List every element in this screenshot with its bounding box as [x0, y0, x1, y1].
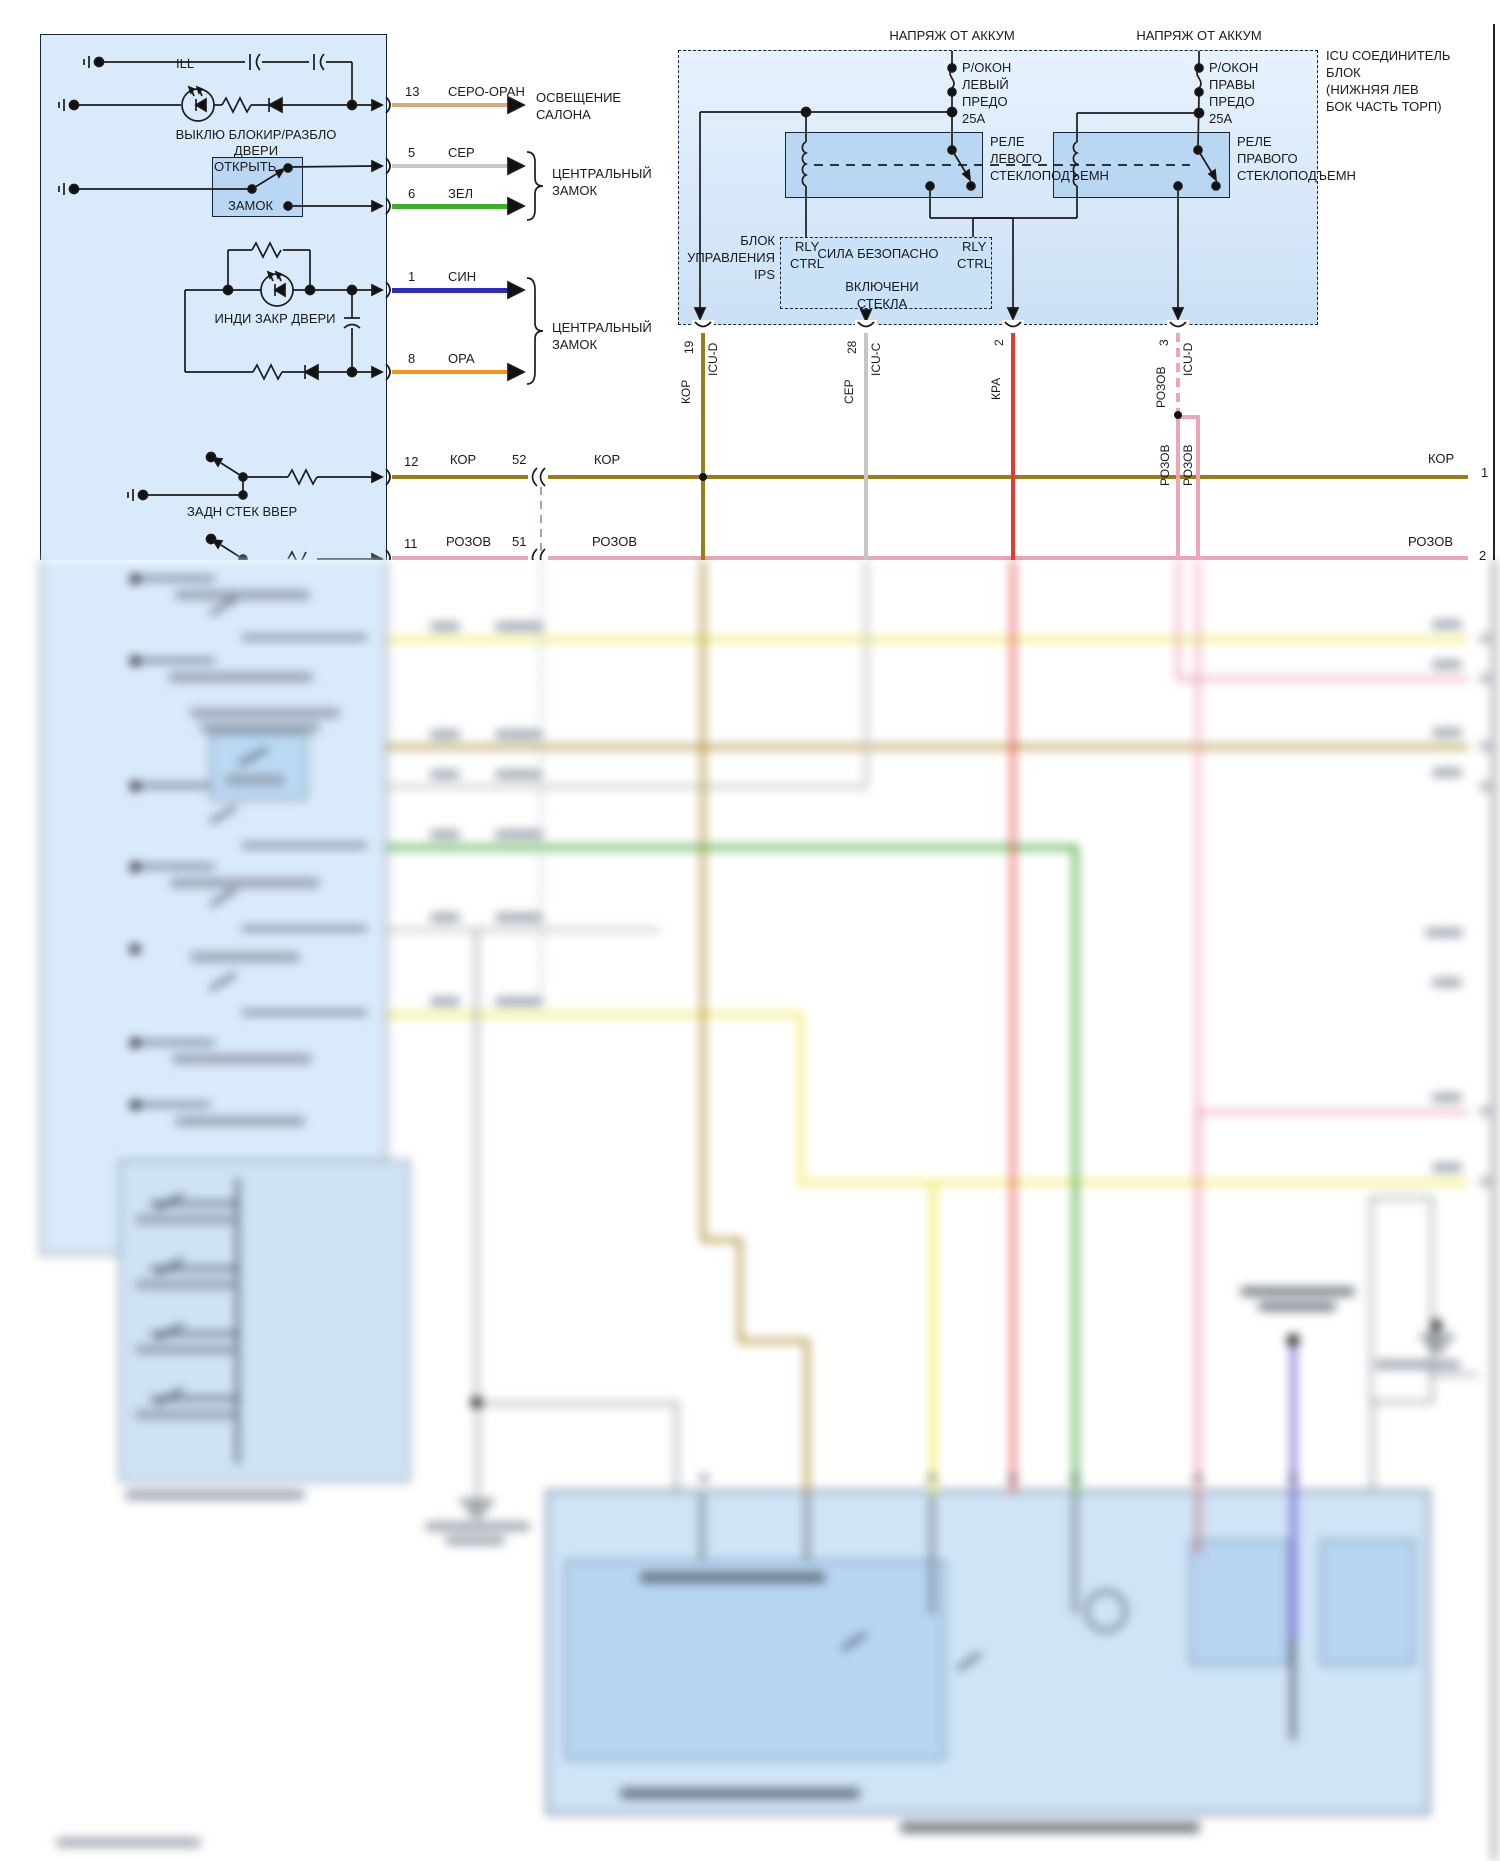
pin12-num: 12 — [404, 454, 418, 469]
blurred-rpin-8 — [1480, 1177, 1490, 1186]
page-border-right-lower — [1493, 560, 1495, 1861]
blurred-tag-6a — [430, 997, 460, 1006]
blurred-tag-2a — [430, 730, 460, 739]
central-lock-1-line2: ЗАМОК — [552, 183, 597, 198]
blurred-tick-6 — [1289, 1476, 1297, 1480]
blurred-line-3 — [140, 784, 210, 787]
blurred-rlabel-3 — [1432, 728, 1462, 737]
window-enable-l1: ВКЛЮЧЕНИ — [816, 279, 948, 294]
blurred-rlabel-6 — [1432, 978, 1462, 987]
blurred-tick-5 — [1194, 1476, 1202, 1480]
icu-pin28-conn: ICU-C — [869, 328, 883, 376]
blurred-swline-a — [150, 1202, 236, 1205]
relay-left-l1: РЕЛЕ — [990, 134, 1025, 149]
door-indicator-label: ИНДИ ЗАКР ДВЕРИ — [200, 311, 350, 326]
blurred-pink-vert-3 — [1196, 1110, 1200, 1494]
blurred-tick-3 — [1009, 1476, 1017, 1480]
battery-voltage-right: НАПРЯЖ ОТ АККУМ — [1119, 28, 1279, 43]
central-lock-2-line2: ЗАМОК — [552, 337, 597, 352]
pin1-num: 1 — [408, 269, 415, 284]
icu-pin3-wire: РОЗОВ — [1154, 356, 1168, 408]
blurred-switch-line-1 — [242, 636, 367, 639]
blurred-label-7 — [190, 952, 300, 962]
blurred-ground-3 — [130, 781, 140, 791]
blurred-tick-4 — [1071, 1476, 1079, 1480]
blurred-watermark — [56, 1838, 201, 1847]
blurred-line-2 — [140, 659, 215, 662]
rear-window-switch — [128, 453, 382, 502]
blurred-pink-wire-2 — [1198, 1110, 1468, 1114]
blurred-module-title — [640, 1572, 825, 1583]
relay-right-l1: РЕЛЕ — [1237, 134, 1272, 149]
central-lock-brace-2 — [527, 278, 543, 384]
blurred-green-wire-1 — [387, 845, 1077, 850]
wire-end-arrows — [508, 97, 524, 380]
blurred-label-c — [135, 1345, 235, 1354]
icu-pin19-conn: ICU-D — [706, 328, 720, 376]
blurred-gray-wire-3 — [1428, 1373, 1478, 1376]
icu-pin2-wire: КРА — [989, 362, 1003, 400]
blurred-mod-stub-2 — [805, 1494, 809, 1560]
fuse-right-l1: Р/ОКОН — [1209, 60, 1258, 75]
ips-label-l1: БЛОК — [660, 233, 775, 248]
blurred-small-switch-box — [210, 733, 307, 800]
blurred-ground-1 — [130, 574, 140, 584]
interior-light-line1: ОСВЕЩЕНИЕ — [536, 90, 621, 105]
blurred-rpin-1 — [1480, 634, 1490, 643]
blurred-mod-stub-6 — [1291, 1640, 1295, 1740]
relay-left-l3: СТЕКЛОПОДЪЕМН — [990, 168, 1109, 183]
blurred-ground-mid-b1 — [460, 1500, 494, 1503]
blurred-tag-5a — [430, 913, 460, 922]
blurred-tag-1a — [430, 622, 460, 631]
blurred-ground-4 — [130, 862, 140, 872]
blurred-pink-wire-1 — [1178, 677, 1468, 681]
icu-pin2-num: 2 — [992, 330, 1006, 346]
connector-51-wire-label: РОЗОВ — [592, 534, 637, 549]
blurred-line-6 — [140, 1103, 210, 1106]
blurred-tag-3a — [430, 770, 460, 779]
blurred-left-block-lower — [40, 560, 387, 1255]
icu-pin3-conn: ICU-D — [1181, 328, 1195, 376]
blurred-yellow-wire-1 — [387, 637, 1468, 642]
blurred-olive-vert — [701, 560, 705, 1242]
blurred-gray-vert-1 — [475, 928, 478, 1406]
blurred-swline-b — [150, 1267, 236, 1270]
relay-right-l2: ПРАВОГО — [1237, 151, 1298, 166]
icu-note-l1: ICU СОЕДИНИТЕЛЬ — [1326, 48, 1450, 63]
blurred-yellow-wire-2 — [387, 1012, 802, 1017]
right-kor-pin: 1 — [1481, 465, 1488, 480]
switch-title-line2: ДВЕРИ — [150, 143, 362, 158]
icu-wiring — [692, 51, 1220, 330]
blurred-gray-vert-2 — [675, 1402, 678, 1494]
blurred-gray-drop — [476, 1408, 479, 1498]
right-kor-label: КОР — [1428, 451, 1454, 466]
blurred-ground-mid-b2 — [466, 1507, 488, 1510]
blurred-switch-line-3 — [242, 927, 367, 930]
icu-pin28-num: 28 — [845, 328, 859, 354]
blurred-ground-right-b1 — [1420, 1335, 1454, 1338]
blurred-ground-right-dot — [1431, 1320, 1442, 1331]
blurred-switch-line-2 — [242, 844, 367, 847]
relay-left-l2: ЛЕВОГО — [990, 151, 1042, 166]
blurred-rpin-4 — [1480, 782, 1490, 791]
blurred-ground-right-b2 — [1426, 1342, 1448, 1345]
blurred-line-5 — [140, 1041, 215, 1044]
blurred-rpin-3 — [1480, 742, 1490, 751]
blurred-line-4 — [140, 865, 215, 868]
pin13-wire: СЕРО-ОРАН — [448, 84, 525, 99]
inline-connector-52 — [528, 468, 548, 486]
fuse-right-l2: ПРАВЫ — [1209, 77, 1255, 92]
blurred-motor-circle — [1085, 1590, 1127, 1632]
blurred-violet-dot — [1287, 1334, 1299, 1346]
blurred-ground-right-b3 — [1431, 1349, 1443, 1352]
blurred-tag-2b — [495, 730, 543, 739]
blurred-rlabel-5 — [1425, 928, 1463, 937]
ips-label-l3: IPS — [660, 267, 775, 282]
blurred-olive-vert-3 — [805, 1339, 809, 1494]
battery-voltage-left: НАПРЯЖ ОТ АККУМ — [872, 28, 1032, 43]
capacitor-branch — [84, 54, 352, 101]
blurred-label-d — [135, 1410, 235, 1419]
blurred-ground-2 — [130, 656, 140, 666]
lock-label: ЗАМОК — [228, 198, 273, 213]
blurred-caption-left — [125, 1490, 305, 1500]
right-rozov-label: РОЗОВ — [1408, 534, 1453, 549]
central-lock-1-line1: ЦЕНТРАЛЬНЫЙ — [552, 166, 652, 181]
blurred-green-vert — [1073, 845, 1078, 1494]
fuse-left-l4: 25A — [962, 111, 985, 126]
icu-pin28-wire: СЕР — [842, 362, 856, 404]
blurred-ground-mid-dot — [471, 1397, 482, 1408]
blurred-label-2 — [168, 672, 313, 682]
blurred-gray-wire-2 — [387, 928, 660, 932]
unlock-label: ОТКРЫТЬ — [214, 159, 276, 174]
blurred-tag-4a — [430, 830, 460, 839]
icu-note-l3: (НИЖНЯЯ ЛЕВ — [1326, 82, 1419, 97]
blurred-yellow-wire-3 — [800, 1180, 1468, 1185]
icu-note-l4: БОК ЧАСТЬ ТОРП) — [1326, 99, 1442, 114]
blurred-swline-c — [150, 1332, 236, 1335]
interior-light-line2: САЛОНА — [536, 107, 591, 122]
blurred-mid-label-2 — [1258, 1302, 1336, 1311]
blurred-mid-label-5 — [445, 1536, 505, 1545]
icu-pin19-wire: КОР — [679, 362, 693, 404]
central-lock-2-line1: ЦЕНТРАЛЬНЫЙ — [552, 320, 652, 335]
blurred-label-a — [135, 1215, 235, 1224]
blurred-bottom-small-box-1 — [1190, 1540, 1290, 1665]
blurred-olive-jog-2 — [738, 1339, 809, 1343]
blurred-tag-5b — [495, 913, 543, 922]
blurred-right-outline-box — [1370, 1197, 1433, 1403]
blurred-label-9 — [175, 1116, 305, 1126]
connector-52-wire-label: КОР — [594, 452, 620, 467]
fuse-left-l1: Р/ОКОН — [962, 60, 1011, 75]
blurred-tick-1 — [700, 1476, 708, 1480]
blurred-rlabel-1 — [1432, 620, 1462, 629]
blurred-label-1 — [175, 590, 310, 600]
pin5-wire: СЕР — [448, 145, 475, 160]
blurred-label-b — [135, 1280, 235, 1289]
blurred-tag-3b — [495, 770, 543, 779]
led-ill — [59, 87, 382, 121]
fuse-right-l4: 25A — [1209, 111, 1232, 126]
blurred-gray-vert-3 — [1371, 1403, 1374, 1493]
pin6-num: 6 — [408, 186, 415, 201]
blurred-label-4 — [200, 723, 320, 733]
blurred-rlabel-8 — [1432, 1163, 1462, 1172]
blurred-rlabel-4 — [1432, 768, 1462, 777]
blurred-mod-stub-4 — [1073, 1494, 1077, 1614]
ill-label: ILL — [176, 56, 194, 71]
blurred-olive-wire-1 — [387, 745, 1468, 749]
blurred-ground-5 — [130, 944, 140, 954]
pin5-num: 5 — [408, 145, 415, 160]
icu-note-l2: БЛОК — [1326, 65, 1361, 80]
blurred-mid-label-4 — [425, 1522, 530, 1531]
safety-power-label: СИЛА БЕЗОПАСНО — [812, 246, 944, 261]
rozov-branch-label-2: РОЗОВ — [1181, 434, 1195, 486]
lower-switch — [207, 535, 383, 561]
blurred-label-3 — [190, 708, 340, 718]
connector-51-label: 51 — [512, 534, 526, 549]
blurred-switch-group-box — [119, 1160, 410, 1482]
pin11-num: 11 — [404, 536, 418, 551]
blurred-ground-6 — [130, 1038, 140, 1048]
blurred-violet-vert — [1291, 1340, 1296, 1640]
fuse-left-l3: ПРЕДО — [962, 94, 1008, 109]
pin8-wire: ОРА — [448, 351, 475, 366]
fuse-right-l3: ПРЕДО — [1209, 94, 1255, 109]
blurred-pink-vert-1 — [1176, 560, 1180, 681]
connector-52-label: 52 — [512, 452, 526, 467]
inline-connector-51 — [528, 549, 548, 560]
blurred-ser-vert — [864, 560, 868, 789]
switch-title-line1: ВЫКЛЮ БЛОКИР/РАЗБЛО — [150, 127, 362, 142]
blurred-olive-vert-2 — [738, 1238, 742, 1343]
pin12-wire: КОР — [450, 452, 476, 467]
blurred-rpin-7 — [1480, 1107, 1490, 1116]
blurred-ground-7 — [130, 1100, 140, 1110]
blurred-bottom-small-box-2 — [1320, 1540, 1415, 1665]
blurred-mod-stub-3 — [930, 1494, 934, 1614]
pin1-wire: СИН — [448, 269, 476, 284]
blurred-tick-2 — [928, 1476, 936, 1480]
blurred-mod-stub-1 — [700, 1494, 704, 1560]
blurred-mid-label-3 — [1375, 1360, 1460, 1369]
rly-right-l2: CTRL — [957, 256, 991, 271]
blurred-bus-line — [236, 1178, 239, 1464]
blurred-line-1 — [140, 577, 215, 580]
blurred-swline-d — [150, 1397, 236, 1400]
blurred-rlabel-2 — [1432, 660, 1462, 669]
blurred-gray-wire-4 — [477, 1402, 677, 1405]
blurred-lower-diagram — [0, 560, 1500, 1861]
pin11-wire: РОЗОВ — [446, 534, 491, 549]
fuse-left-l2: ЛЕВЫЙ — [962, 77, 1009, 92]
blurred-tag-6b — [495, 997, 543, 1006]
icu-pin19-num: 19 — [682, 328, 696, 354]
blurred-module-caption-1 — [620, 1788, 860, 1799]
pin13-num: 13 — [405, 84, 419, 99]
ips-label-l2: УПРАВЛЕНИЯ — [660, 250, 775, 265]
central-lock-brace-1 — [527, 152, 543, 220]
window-enable-l2: СТЕКЛА — [816, 296, 948, 311]
wiring-diagram-page: ILL ВЫКЛЮ БЛОКИР/РАЗБЛО ДВЕРИ ОТКРЫТЬ ЗА… — [0, 0, 1500, 1861]
rozov-branch-label-1: РОЗОВ — [1158, 434, 1172, 486]
block-pin-arcs — [386, 97, 390, 560]
blurred-yellow-vert-1 — [798, 1012, 803, 1184]
rly-right-l1: RLY — [962, 239, 986, 254]
blurred-module-caption-2 — [900, 1822, 1200, 1833]
blurred-rpin-2 — [1480, 674, 1490, 683]
pin8-num: 8 — [408, 351, 415, 366]
pin6-wire: ЗЕЛ — [448, 186, 473, 201]
blurred-olive-jog-1 — [701, 1238, 742, 1242]
blurred-mod-stub-5 — [1196, 1494, 1200, 1554]
blurred-red-vert — [1011, 560, 1015, 1494]
blurred-label-8 — [172, 1054, 312, 1064]
icu-pin3-num: 3 — [1157, 330, 1171, 346]
blurred-yellow-vert-2 — [930, 1180, 936, 1494]
blurred-mid-label-1 — [1240, 1287, 1355, 1296]
blurred-tag-1b — [495, 622, 543, 631]
blurred-tag-4b — [495, 830, 543, 839]
blurred-label-5 — [225, 775, 285, 785]
blurred-bottom-inner-box — [565, 1560, 945, 1760]
relay-right-l3: СТЕКЛОПОДЪЕМН — [1237, 168, 1356, 183]
blurred-ground-mid-b3 — [471, 1514, 483, 1517]
blurred-switch-line-4 — [242, 1011, 367, 1014]
rear-window-switch-label: ЗАДН СТЕК ВВЕР — [187, 504, 297, 519]
blurred-gray-wire-1 — [387, 785, 866, 789]
blurred-label-6 — [170, 878, 320, 888]
blurred-pink-vert-2 — [1196, 560, 1200, 1114]
blurred-rlabel-7 — [1432, 1093, 1462, 1102]
